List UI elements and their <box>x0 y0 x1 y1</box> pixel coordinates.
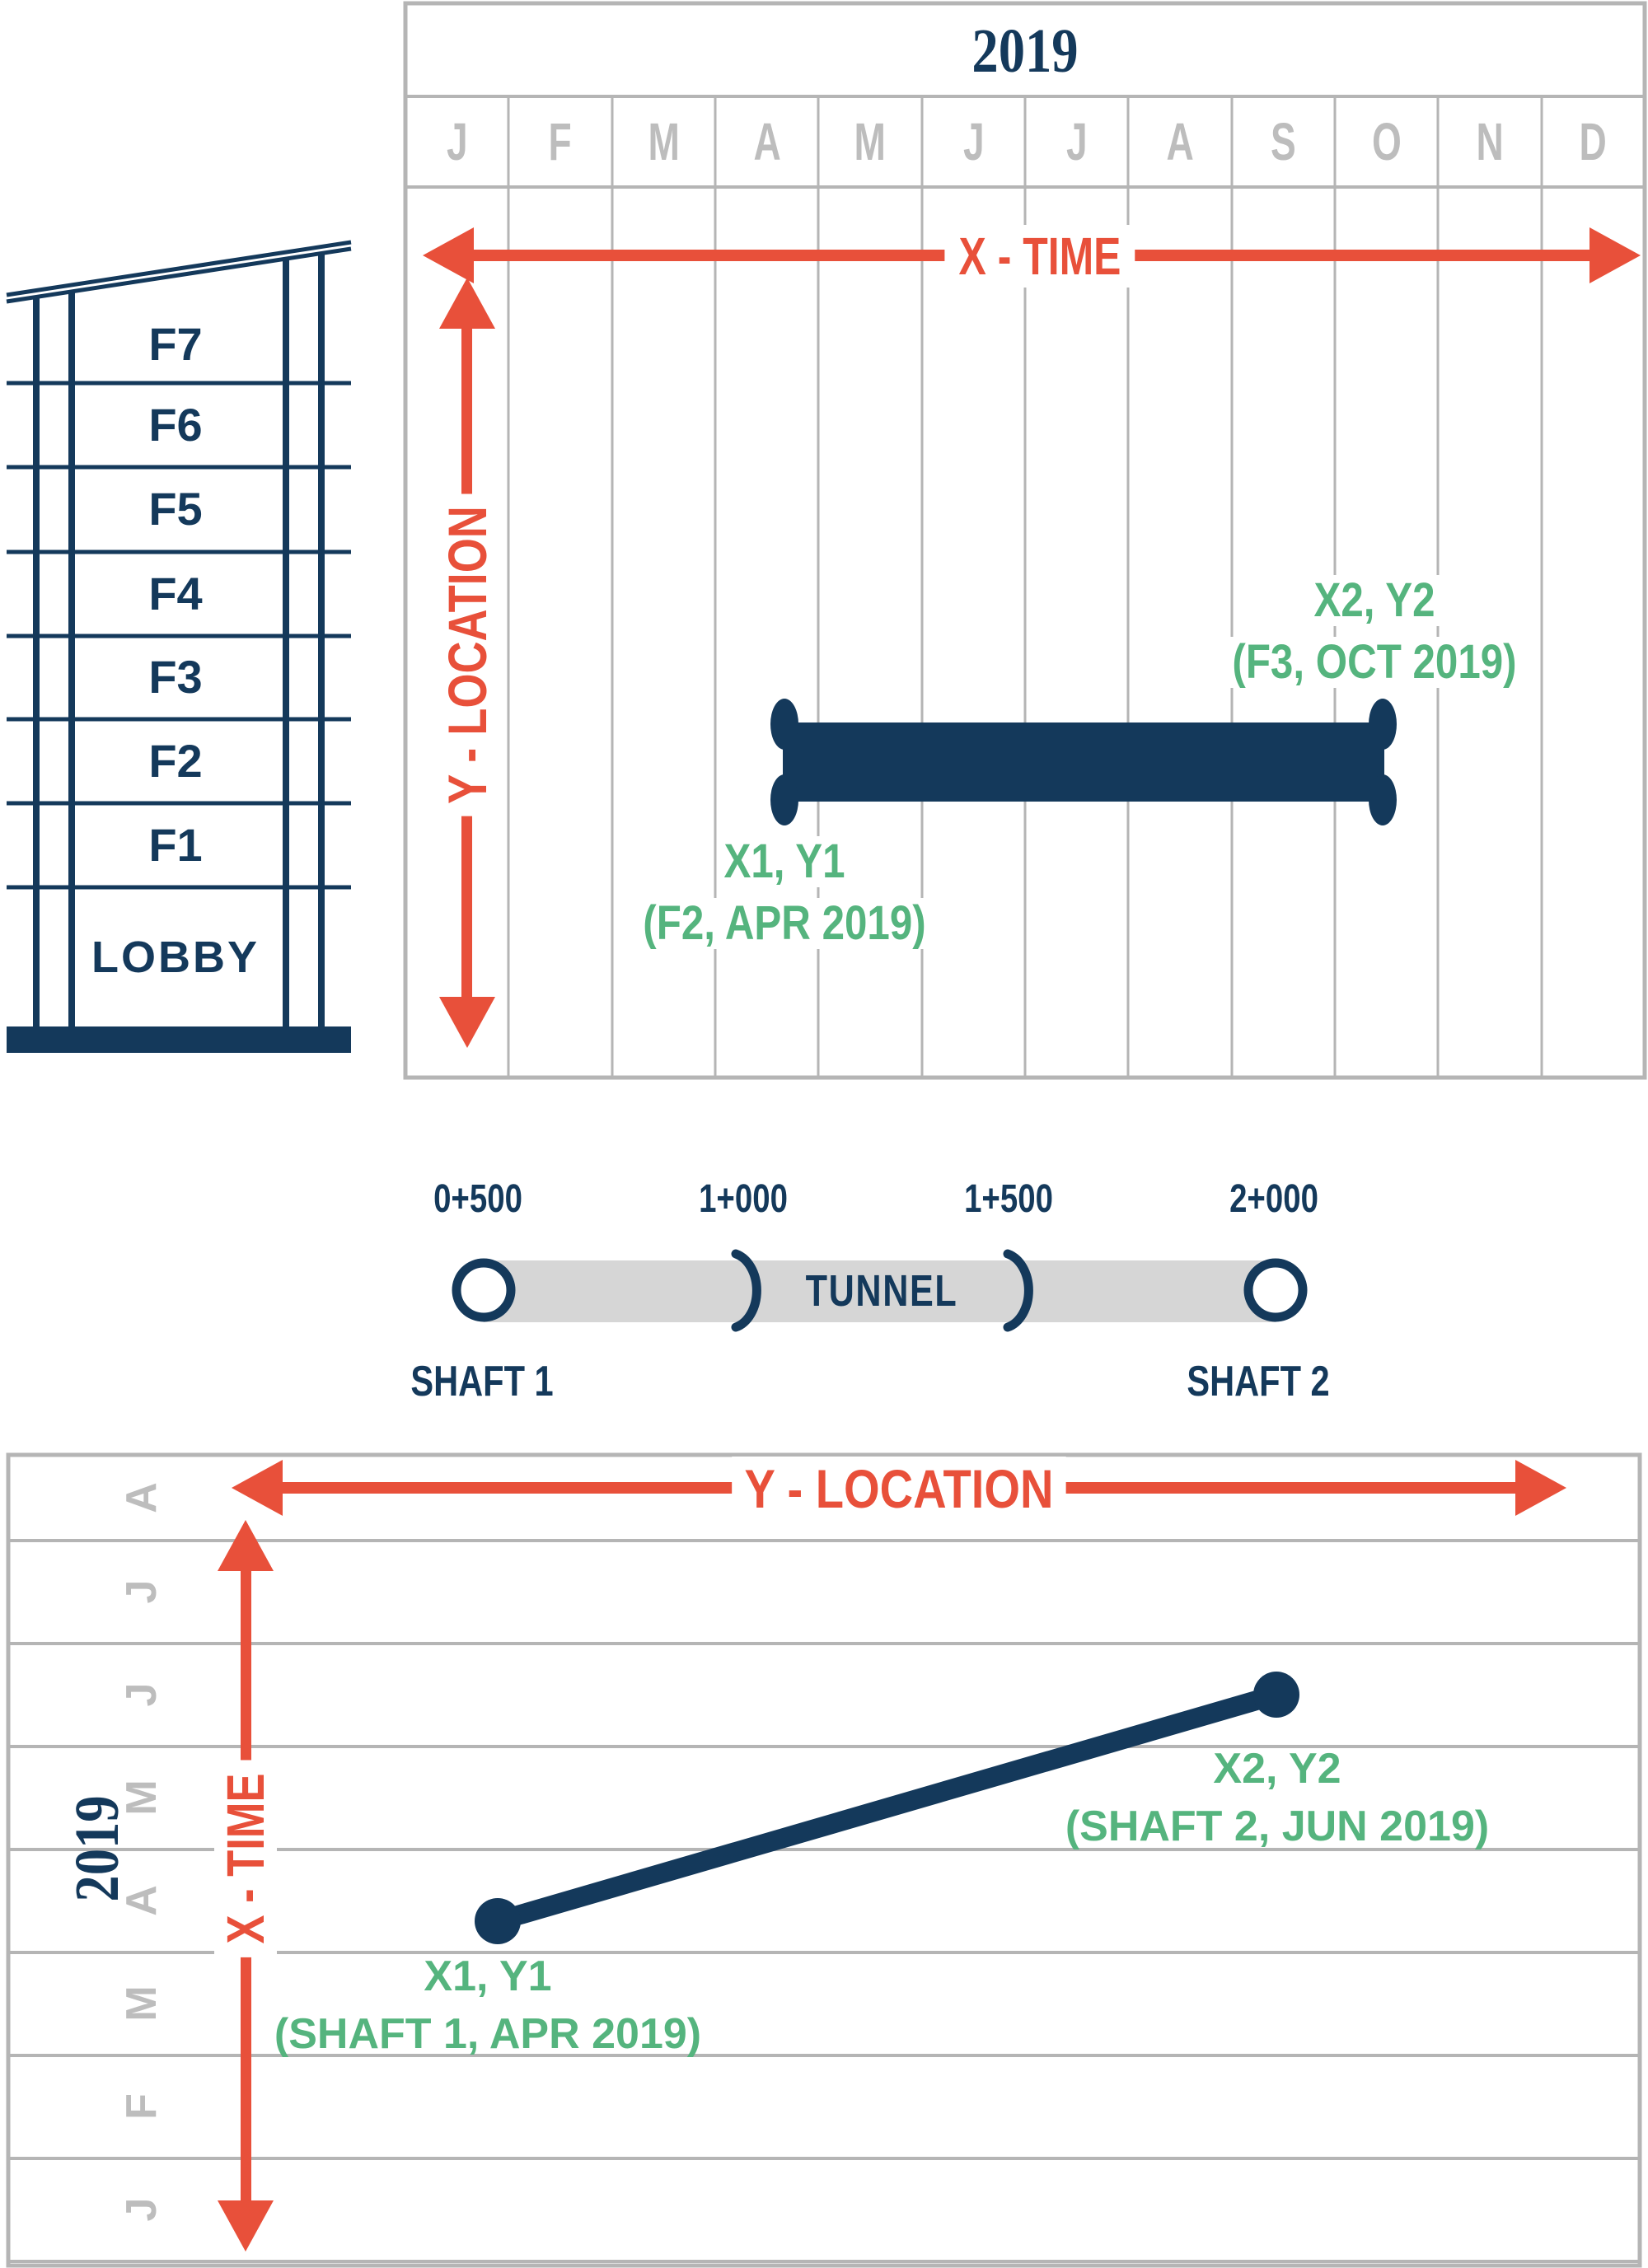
bar-corner-dot <box>770 699 798 750</box>
arrowhead-left-icon <box>232 1460 283 1516</box>
bar-corner-dot <box>1369 774 1397 825</box>
month-cell: M <box>612 96 715 187</box>
bottom-month-feb: F <box>120 2093 163 2120</box>
month-cell: S <box>1232 96 1335 187</box>
floor-label-f1: F1 <box>148 822 202 868</box>
x-time-label-top: X - TIME <box>944 225 1135 288</box>
bottom-month-mar: M <box>120 1985 163 2021</box>
point1-name-top: X1, Y1 <box>717 836 852 887</box>
arrowhead-right-icon <box>1515 1460 1566 1516</box>
point2-name-bottom: X2, Y2 <box>1213 1747 1341 1790</box>
month-cell: J <box>922 96 1025 187</box>
arrowhead-left-icon <box>423 227 474 283</box>
bottom-month-jun: J <box>120 1683 163 1707</box>
roof-line-upper <box>7 242 351 295</box>
top-year-label: 2019 <box>971 20 1078 82</box>
bar-corner-dot <box>770 774 798 825</box>
arrowhead-up-icon <box>218 1520 274 1571</box>
floor-label-f6: F6 <box>148 402 202 448</box>
arrowhead-down-icon <box>439 997 495 1048</box>
x-time-label-bottom: X - TIME <box>214 1760 277 1957</box>
lobby-label: LOBBY <box>91 935 260 980</box>
bottom-month-jul: J <box>120 1580 163 1604</box>
point2-coords-top: (F3, OCT 2019) <box>1225 637 1524 688</box>
shaft2-label: SHAFT 2 <box>1187 1360 1329 1403</box>
month-cell: J <box>405 96 508 187</box>
shaft1-label: SHAFT 1 <box>410 1360 553 1403</box>
month-cell: M <box>818 96 921 187</box>
top-month-row: J F M A M J J A S O N D <box>405 96 1645 187</box>
arrowhead-right-icon <box>1589 227 1641 283</box>
point1-coords-top: (F2, APR 2019) <box>636 898 933 949</box>
point1-dot <box>475 1898 521 1944</box>
bottom-month-apr: A <box>120 1885 163 1916</box>
y-location-label-bottom: Y - LOCATION <box>732 1457 1066 1521</box>
chainage-1000: 1+000 <box>699 1180 788 1219</box>
activity-bar <box>770 699 1397 825</box>
shaft1-circle <box>456 1263 511 1317</box>
roof-line-lower <box>7 249 351 302</box>
month-cell: J <box>1025 96 1128 187</box>
chainage-1500: 1+500 <box>964 1180 1053 1219</box>
month-cell: N <box>1438 96 1541 187</box>
point1-name-bottom: X1, Y1 <box>424 1955 551 1998</box>
floor-label-f5: F5 <box>148 486 202 532</box>
arrowhead-down-icon <box>218 2200 274 2252</box>
floor-label-f2: F2 <box>148 738 202 784</box>
point1-coords-bottom: (SHAFT 1, APR 2019) <box>274 2013 701 2055</box>
y-location-label-top: Y - LOCATION <box>435 493 499 816</box>
point2-coords-bottom: (SHAFT 2, JUN 2019) <box>1065 1805 1489 1848</box>
point2-dot <box>1253 1672 1299 1718</box>
chainage-0500: 0+500 <box>433 1180 522 1219</box>
month-cell: A <box>715 96 818 187</box>
month-cell: A <box>1128 96 1231 187</box>
arrowhead-up-icon <box>439 278 495 329</box>
floor-label-f4: F4 <box>148 571 202 617</box>
chainage-2000: 2+000 <box>1229 1180 1318 1219</box>
month-cell: O <box>1335 96 1438 187</box>
bar-corner-dot <box>1369 699 1397 750</box>
bottom-month-aug: A <box>120 1482 163 1513</box>
month-cell: F <box>508 96 611 187</box>
floor-label-f3: F3 <box>148 654 202 700</box>
month-cell: D <box>1542 96 1645 187</box>
shaft2-circle <box>1248 1263 1303 1317</box>
ground-slab <box>7 1026 351 1053</box>
tunnel-label: TUNNEL <box>806 1269 958 1313</box>
floor-label-f7: F7 <box>148 321 202 367</box>
bottom-month-may: M <box>120 1779 163 1815</box>
time-location-diagram: 2019 J F M A M J J A S O N D X - TIME Y … <box>0 0 1648 2268</box>
bottom-month-jan: J <box>120 2198 163 2222</box>
point2-name-top: X2, Y2 <box>1307 575 1442 626</box>
